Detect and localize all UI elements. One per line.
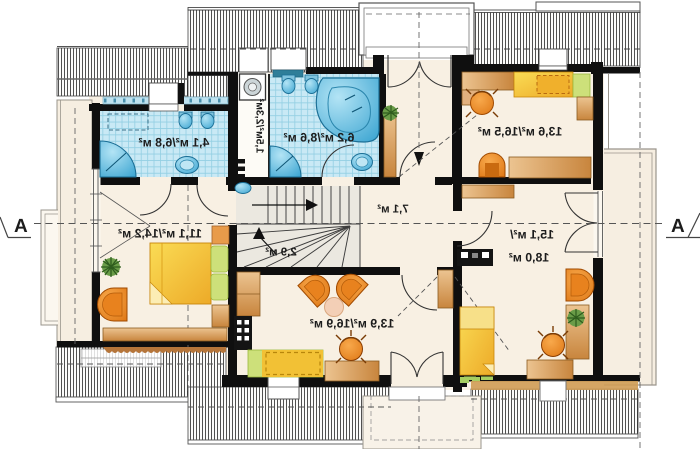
svg-text:2,9 м²: 2,9 м²: [265, 247, 297, 259]
svg-text:A: A: [14, 216, 28, 237]
svg-text:7,1 м²: 7,1 м²: [377, 204, 409, 216]
svg-text:4,1 м²/6,8 м²: 4,1 м²/6,8 м²: [139, 136, 210, 150]
svg-text:15,1 м²/: 15,1 м²/: [509, 228, 554, 242]
svg-text:18,0 м²: 18,0 м²: [509, 251, 550, 265]
svg-text:11,1 м²/14,2 м²: 11,1 м²/14,2 м²: [118, 227, 202, 241]
svg-text:6,2 м²/8,6 м²: 6,2 м²/8,6 м²: [284, 131, 355, 145]
svg-text:1,5м²/2,3м²: 1,5м²/2,3м²: [254, 98, 266, 153]
svg-text:13,6 м²/16,5 м²: 13,6 м²/16,5 м²: [478, 125, 563, 139]
svg-text:A: A: [671, 216, 685, 237]
svg-text:13,9 м²/16,9 м²: 13,9 м²/16,9 м²: [310, 317, 395, 331]
